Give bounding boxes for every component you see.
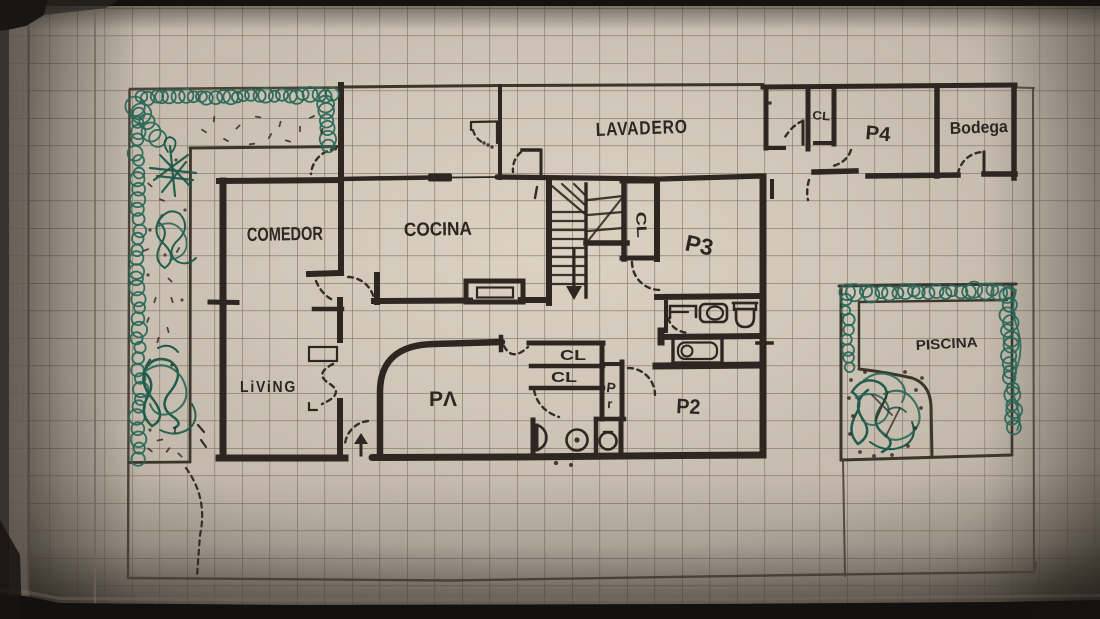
svg-text:CL: CL [551,369,577,386]
svg-text:COMEDOR: COMEDOR [247,224,324,246]
svg-text:P2: P2 [676,395,701,419]
svg-text:PΛ: PΛ [429,388,457,411]
svg-text:PISCINA: PISCINA [915,334,978,353]
svg-text:Bodega: Bodega [949,117,1008,138]
svg-text:r: r [607,396,613,411]
svg-text:CL: CL [812,108,831,124]
svg-text:COCINA: COCINA [404,219,473,241]
svg-text:P: P [606,379,617,396]
svg-text:CL: CL [560,347,586,364]
svg-text:CL: CL [633,211,650,238]
svg-text:LiViNG: LiViNG [240,379,297,396]
svg-text:LAVADERO: LAVADERO [595,117,688,141]
svg-text:P4: P4 [865,122,893,146]
